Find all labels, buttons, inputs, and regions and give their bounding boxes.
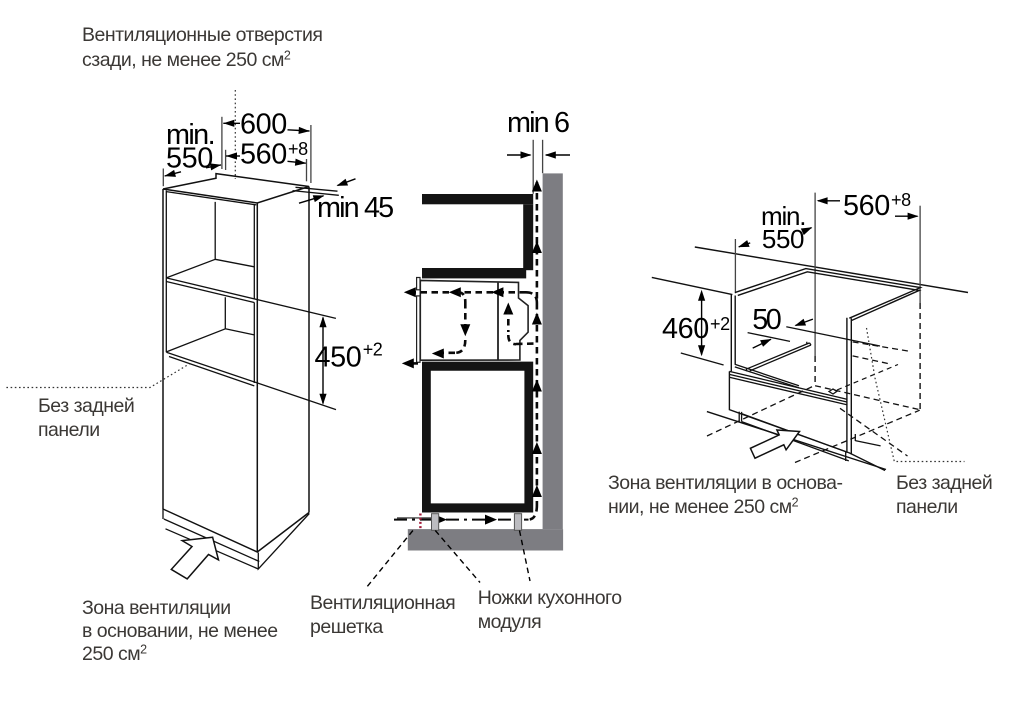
svg-text:550: 550	[166, 143, 213, 175]
svg-text:450: 450	[315, 342, 362, 374]
svg-text:Ножки кухонного: Ножки кухонного	[478, 587, 623, 609]
svg-text:сзади, не менее 250 см2: сзади, не менее 250 см2	[82, 49, 291, 72]
svg-text:Вентиляционные отверстия: Вентиляционные отверстия	[82, 24, 322, 46]
svg-text:550: 550	[762, 224, 804, 254]
svg-text:Зона вентиляции в основа-: Зона вентиляции в основа-	[608, 472, 843, 494]
svg-text:Вентиляционная: Вентиляционная	[310, 592, 455, 614]
svg-text:min 45: min 45	[317, 192, 393, 224]
svg-text:в основании, не менее: в основании, не менее	[82, 620, 278, 642]
svg-text:+8: +8	[288, 139, 308, 159]
svg-text:нии, не менее 250 см2: нии, не менее 250 см2	[608, 496, 799, 519]
svg-text:+2: +2	[710, 314, 730, 334]
svg-text:560: 560	[240, 139, 287, 171]
svg-text:600: 600	[240, 109, 287, 141]
svg-text:Зона вентиляции: Зона вентиляции	[82, 597, 231, 619]
svg-text:Без задней: Без задней	[38, 395, 134, 417]
svg-text:+2: +2	[363, 340, 383, 360]
svg-text:+8: +8	[891, 190, 911, 210]
svg-text:панели: панели	[896, 496, 958, 518]
svg-text:модуля: модуля	[478, 611, 541, 633]
svg-text:460: 460	[662, 313, 709, 345]
svg-text:560: 560	[843, 190, 890, 222]
svg-text:50: 50	[752, 304, 781, 336]
svg-text:решетка: решетка	[310, 616, 383, 638]
svg-text:Без задней: Без задней	[896, 472, 992, 494]
svg-text:250 см2: 250 см2	[82, 643, 147, 666]
svg-text:панели: панели	[38, 419, 100, 441]
svg-text:min 6: min 6	[507, 107, 569, 139]
